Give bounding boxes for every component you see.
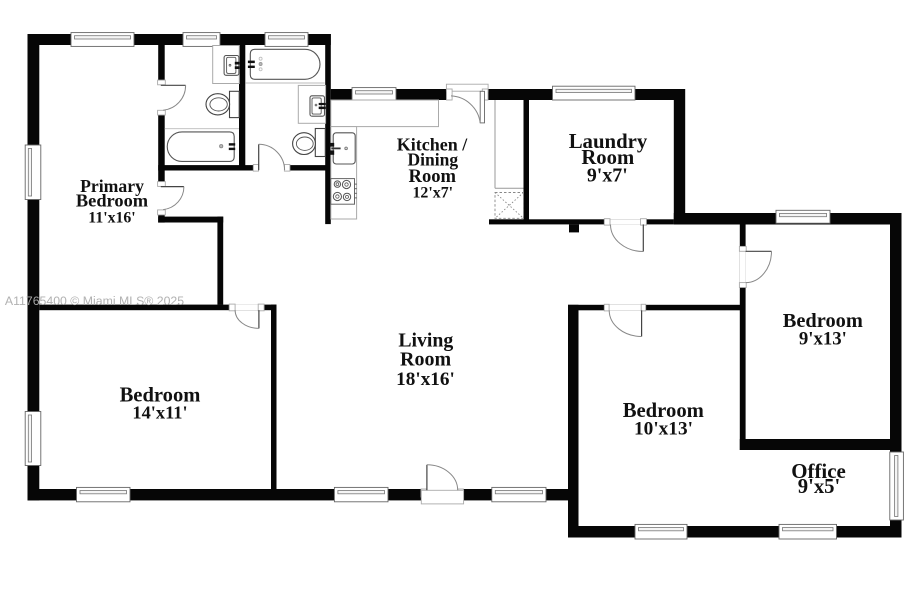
svg-text:12'x7': 12'x7' — [412, 185, 453, 202]
svg-text:11'x16': 11'x16' — [88, 209, 135, 226]
svg-text:A11765400 © Miami MLS® 2025: A11765400 © Miami MLS® 2025 — [5, 294, 184, 308]
svg-text:9'x13': 9'x13' — [799, 329, 847, 350]
svg-text:18'x16': 18'x16' — [396, 369, 455, 390]
svg-text:9'x5': 9'x5' — [798, 476, 841, 498]
svg-text:9'x7': 9'x7' — [587, 164, 628, 186]
svg-text:Bedroom: Bedroom — [76, 191, 148, 211]
svg-text:10'x13': 10'x13' — [634, 419, 693, 440]
svg-text:Room: Room — [400, 349, 451, 371]
svg-text:14'x11': 14'x11' — [132, 402, 187, 422]
